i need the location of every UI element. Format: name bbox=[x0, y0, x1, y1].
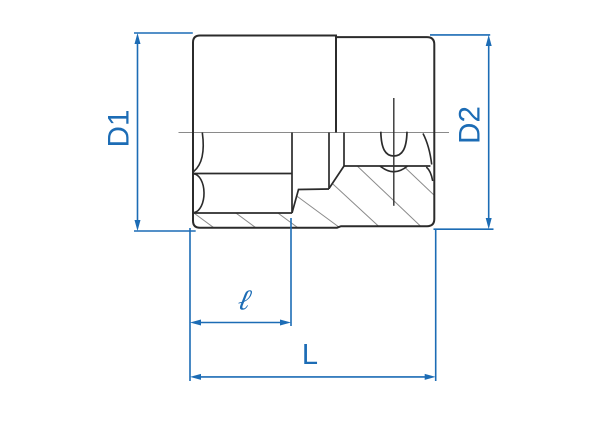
svg-text:ℓ: ℓ bbox=[235, 285, 255, 317]
svg-text:L: L bbox=[302, 339, 318, 371]
svg-text:D1: D1 bbox=[103, 110, 136, 148]
svg-text:D2: D2 bbox=[454, 106, 487, 144]
